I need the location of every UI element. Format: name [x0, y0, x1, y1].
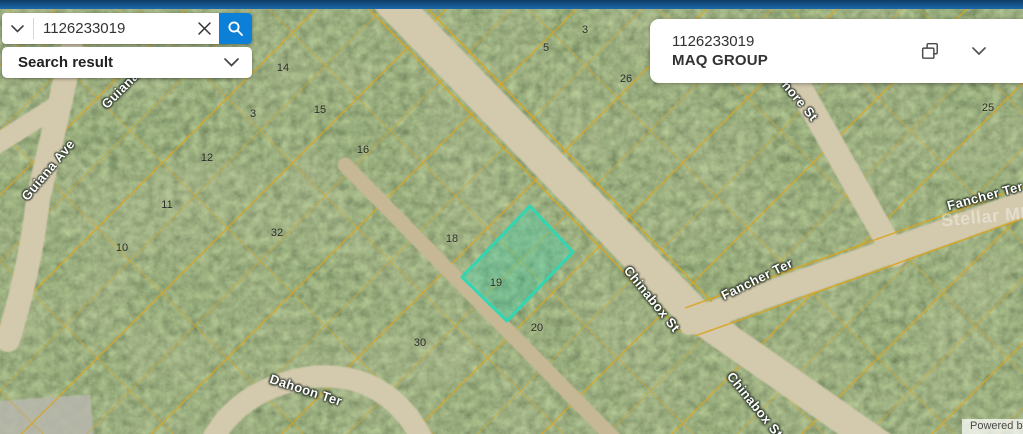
chevron-down-icon — [972, 47, 986, 56]
result-parcel-id: 1126233019 — [672, 32, 768, 51]
map-app-window: Guiana AveGuiana AveDahoon TerChinabox S… — [0, 0, 1023, 434]
copy-button[interactable] — [921, 42, 940, 61]
search-source-dropdown[interactable] — [2, 13, 33, 44]
copy-icon — [921, 42, 940, 61]
panel-actions — [921, 19, 986, 83]
chevron-down-icon — [11, 25, 24, 33]
search-box — [2, 13, 252, 44]
chevron-down-icon — [224, 58, 239, 67]
clear-search-button[interactable] — [189, 13, 219, 44]
search-button[interactable] — [219, 13, 252, 44]
search-result-label: Search result — [18, 54, 113, 71]
top-browser-strip — [0, 0, 1023, 9]
search-input[interactable] — [34, 13, 189, 44]
search-result-panel: 1126233019 MAQ GROUP — [650, 19, 1023, 83]
map-attribution: Powered by Esri — [962, 419, 1023, 434]
panel-collapse-button[interactable] — [972, 47, 986, 56]
search-widget: Search result — [2, 13, 252, 78]
clear-x-icon — [197, 21, 212, 36]
result-owner-name: MAQ GROUP — [672, 51, 768, 70]
result-texts: 1126233019 MAQ GROUP — [650, 32, 768, 70]
magnifier-icon — [227, 20, 244, 37]
search-result-dropdown[interactable]: Search result — [2, 47, 252, 78]
